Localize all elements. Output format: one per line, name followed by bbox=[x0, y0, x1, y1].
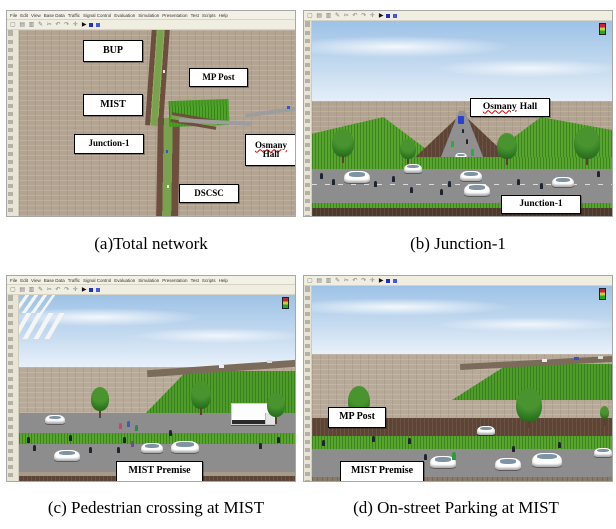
signal-green-dot bbox=[471, 149, 474, 156]
pedestrian bbox=[392, 176, 395, 182]
car bbox=[344, 171, 370, 183]
road-vertical-upper bbox=[145, 30, 170, 126]
pedestrian bbox=[27, 437, 30, 443]
vehicle-dot bbox=[219, 365, 224, 368]
toolbar: ▢ ▤ ▥ ✎ ✂ ↶ ↷ ✛ ▶ bbox=[304, 276, 612, 286]
tree bbox=[91, 387, 109, 411]
map-label-mp-post: MP Post bbox=[189, 68, 248, 87]
scene-label-mp-post: MP Post bbox=[328, 407, 386, 428]
signal-head-icon bbox=[282, 297, 289, 309]
menu-edit[interactable]: Edit bbox=[20, 278, 28, 283]
toolbar-icons[interactable]: ▢ ▤ ▥ ✎ ✂ ↶ ↷ ✛ bbox=[10, 286, 79, 293]
menu-traffic[interactable]: Traffic bbox=[68, 13, 80, 18]
pedestrian bbox=[169, 430, 172, 436]
menu-scripts[interactable]: Scripts bbox=[202, 278, 216, 283]
scene-canvas-d[interactable]: MP Post MIST Premise bbox=[312, 286, 612, 481]
pedestrian bbox=[131, 441, 134, 447]
tree bbox=[332, 129, 354, 157]
menu-simulation[interactable]: Simulation bbox=[138, 278, 159, 283]
pedestrian bbox=[119, 423, 122, 429]
pause-button[interactable] bbox=[386, 279, 390, 283]
scene-label-osmany-hall: OsmanyHall bbox=[470, 98, 550, 117]
tree bbox=[267, 393, 285, 417]
pedestrian bbox=[322, 440, 325, 446]
tree bbox=[497, 133, 517, 159]
menu-presentation[interactable]: Presentation bbox=[162, 278, 187, 283]
car bbox=[552, 177, 574, 187]
toolbar-icons[interactable]: ▢ ▤ ▥ ✎ ✂ ↶ ↷ ✛ bbox=[10, 21, 79, 28]
map-label-junction1: Junction-1 bbox=[74, 134, 144, 154]
map-label-mist: MIST bbox=[83, 94, 143, 116]
vehicle-dot bbox=[167, 185, 169, 188]
network-canvas-a[interactable]: BUP MP Post MIST Junction-1 OsmanyHall D… bbox=[19, 30, 295, 216]
pedestrian bbox=[440, 189, 443, 195]
car bbox=[464, 184, 490, 196]
toolbar-icons[interactable]: ▢ ▤ ▥ ✎ ✂ ↶ ↷ ✛ bbox=[307, 12, 376, 19]
menu-scripts[interactable]: Scripts bbox=[202, 13, 216, 18]
pause-button[interactable] bbox=[386, 14, 390, 18]
vehicle-dot bbox=[287, 106, 290, 109]
pedestrian bbox=[320, 173, 323, 179]
car bbox=[45, 415, 65, 424]
vehicle-dot bbox=[574, 357, 579, 360]
tree bbox=[400, 139, 416, 159]
menu-file[interactable]: File bbox=[10, 13, 17, 18]
menu-signal-control[interactable]: Signal Control bbox=[83, 13, 111, 18]
stop-button[interactable] bbox=[393, 14, 397, 18]
menu-help[interactable]: Help bbox=[219, 13, 228, 18]
menu-view[interactable]: View bbox=[31, 278, 41, 283]
menu-signal-control[interactable]: Signal Control bbox=[83, 278, 111, 283]
menu-base-data[interactable]: Base Data bbox=[44, 278, 65, 283]
menu-simulation[interactable]: Simulation bbox=[138, 13, 159, 18]
pedestrian bbox=[69, 435, 72, 441]
dirt-strip-left bbox=[19, 476, 127, 481]
vissim-window-d: ▢ ▤ ▥ ✎ ✂ ↶ ↷ ✛ ▶ bbox=[303, 275, 613, 482]
vehicle-dot bbox=[598, 356, 603, 359]
grass-verge-top bbox=[312, 157, 612, 169]
caption-a: (a)Total network bbox=[6, 234, 296, 254]
menu-test[interactable]: Test bbox=[191, 13, 199, 18]
toolbar-icons[interactable]: ▢ ▤ ▥ ✎ ✂ ↶ ↷ ✛ bbox=[307, 277, 376, 284]
left-toolbar[interactable] bbox=[304, 21, 312, 216]
pedestrian bbox=[517, 179, 520, 185]
car bbox=[141, 443, 163, 453]
pedestrian bbox=[597, 171, 600, 177]
car bbox=[404, 164, 422, 173]
pedestrian bbox=[135, 425, 138, 431]
menu-base-data[interactable]: Base Data bbox=[44, 13, 65, 18]
scene-label-mist-premise: MIST Premise bbox=[340, 461, 424, 481]
pedestrian bbox=[410, 187, 413, 193]
pedestrian bbox=[33, 445, 36, 451]
car bbox=[460, 171, 482, 181]
vehicle-dot bbox=[166, 150, 168, 153]
pedestrian bbox=[372, 436, 375, 442]
tree bbox=[516, 388, 542, 422]
pedestrian bbox=[408, 438, 411, 444]
sky bbox=[312, 286, 612, 356]
signal-head-icon bbox=[599, 288, 606, 300]
tree bbox=[191, 381, 211, 409]
pedestrian bbox=[123, 437, 126, 443]
vehicle-dot bbox=[163, 70, 165, 73]
parked-car bbox=[594, 448, 612, 457]
vissim-window-c: FileEditViewBase DataTrafficSignal Contr… bbox=[6, 275, 296, 482]
stop-button[interactable] bbox=[96, 288, 100, 292]
vehicle-dot bbox=[542, 359, 547, 362]
map-label-osmany-hall: OsmanyHall bbox=[245, 134, 295, 166]
pedestrian bbox=[374, 181, 377, 187]
scene-label-mist-premise: MIST Premise bbox=[116, 461, 203, 481]
toolbar: ▢ ▤ ▥ ✎ ✂ ↶ ↷ ✛ ▶ bbox=[304, 11, 612, 21]
left-toolbar[interactable] bbox=[304, 286, 312, 481]
play-button[interactable]: ▶ bbox=[82, 21, 87, 28]
menu-bar: FileEditViewBase DataTrafficSignal Contr… bbox=[7, 11, 295, 20]
grass-verge bbox=[312, 436, 612, 449]
vissim-window-a: FileEditViewBase DataTrafficSignal Contr… bbox=[6, 10, 296, 217]
signal-green-dot bbox=[451, 141, 454, 147]
bus-dot bbox=[458, 116, 464, 124]
pedestrian bbox=[259, 443, 262, 449]
pedestrian bbox=[424, 454, 427, 460]
pedestrian bbox=[332, 179, 335, 185]
pedestrian bbox=[466, 139, 468, 144]
pedestrian bbox=[89, 447, 92, 453]
pedestrian bbox=[540, 183, 543, 189]
menu-evaluation[interactable]: Evaluation bbox=[114, 278, 135, 283]
play-button[interactable]: ▶ bbox=[379, 12, 384, 19]
vissim-window-b: ▢ ▤ ▥ ✎ ✂ ↶ ↷ ✛ ▶ bbox=[303, 10, 613, 217]
scene-canvas-b[interactable]: OsmanyHall Junction-1 bbox=[312, 21, 612, 216]
parked-van bbox=[532, 453, 562, 467]
menu-test[interactable]: Test bbox=[191, 278, 199, 283]
toolbar: ▢ ▤ ▥ ✎ ✂ ↶ ↷ ✛ ▶ bbox=[7, 20, 295, 30]
map-label-bup: BUP bbox=[83, 40, 143, 62]
dirt-strip-right bbox=[197, 476, 295, 481]
pedestrian bbox=[452, 452, 456, 460]
pause-button[interactable] bbox=[89, 23, 93, 27]
scene-canvas-c[interactable]: MIST Premise bbox=[19, 295, 295, 481]
car bbox=[477, 426, 495, 435]
menu-traffic[interactable]: Traffic bbox=[68, 278, 80, 283]
tree bbox=[600, 406, 609, 419]
pedestrian bbox=[558, 442, 561, 448]
menu-file[interactable]: File bbox=[10, 278, 17, 283]
caption-d: (d) On-street Parking at MIST bbox=[306, 498, 606, 518]
sky bbox=[19, 295, 295, 369]
pedestrian bbox=[462, 129, 464, 133]
left-toolbar[interactable] bbox=[7, 295, 19, 481]
car bbox=[54, 450, 80, 461]
scene-label-junction1: Junction-1 bbox=[501, 195, 581, 214]
menu-help[interactable]: Help bbox=[219, 278, 228, 283]
stop-button[interactable] bbox=[393, 279, 397, 283]
left-toolbar[interactable] bbox=[7, 30, 19, 216]
stop-button[interactable] bbox=[96, 23, 100, 27]
play-button[interactable]: ▶ bbox=[379, 277, 384, 284]
caption-c: (c) Pedestrian crossing at MIST bbox=[6, 498, 306, 518]
play-button[interactable]: ▶ bbox=[82, 286, 87, 293]
map-label-dscsc: DSCSC bbox=[179, 184, 239, 203]
pedestrian bbox=[117, 447, 120, 453]
parked-car bbox=[495, 458, 521, 470]
menu-presentation[interactable]: Presentation bbox=[162, 13, 187, 18]
pedestrian bbox=[512, 446, 515, 452]
sky bbox=[312, 21, 612, 107]
tree bbox=[574, 127, 600, 159]
signal-head-icon bbox=[599, 23, 606, 35]
pedestrian bbox=[448, 181, 451, 187]
menu-edit[interactable]: Edit bbox=[20, 13, 28, 18]
menu-view[interactable]: View bbox=[31, 13, 41, 18]
car bbox=[171, 441, 199, 453]
road-vertical-lower bbox=[156, 118, 180, 216]
menu-evaluation[interactable]: Evaluation bbox=[114, 13, 135, 18]
toolbar: ▢ ▤ ▥ ✎ ✂ ↶ ↷ ✛ ▶ bbox=[7, 285, 295, 295]
vehicle-dot bbox=[267, 360, 272, 363]
menu-bar: FileEditViewBase DataTrafficSignal Contr… bbox=[7, 276, 295, 285]
pedestrian bbox=[277, 437, 280, 443]
caption-b: (b) Junction-1 bbox=[303, 234, 613, 254]
pause-button[interactable] bbox=[89, 288, 93, 292]
pedestrian bbox=[127, 421, 130, 427]
